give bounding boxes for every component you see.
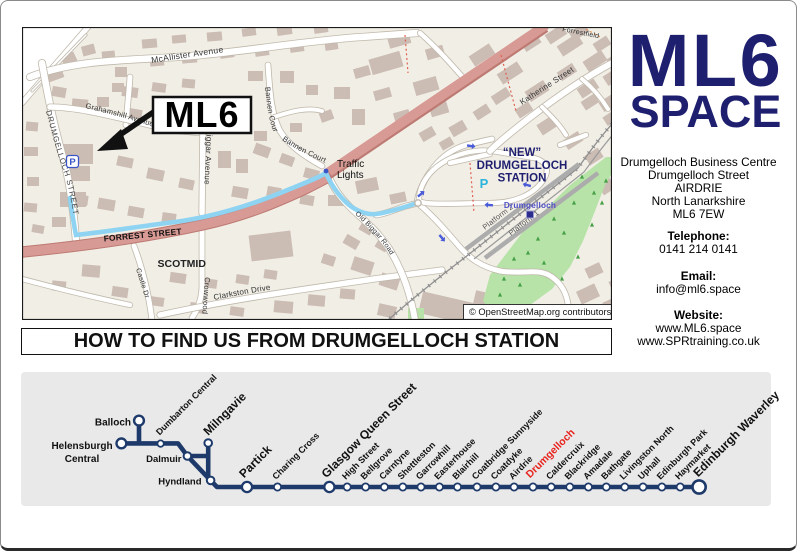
svg-text:Central: Central [65, 454, 100, 465]
svg-text:© OpenStreetMap.org contributo: © OpenStreetMap.org contributors [469, 307, 612, 317]
svg-text:SCOTMID: SCOTMID [158, 258, 207, 270]
svg-text:Balloch: Balloch [95, 417, 131, 428]
svg-text:Dalmuir: Dalmuir [146, 454, 182, 465]
svg-text:“NEW”: “NEW” [503, 147, 541, 159]
svg-text:DRUMGELLOCH: DRUMGELLOCH [477, 160, 568, 172]
svg-text:Traffic: Traffic [337, 159, 364, 170]
svg-text:Drumgelloch: Drumgelloch [504, 201, 556, 210]
svg-text:Hyndland: Hyndland [158, 476, 201, 487]
svg-text:Lights: Lights [337, 170, 364, 181]
svg-text:P: P [69, 157, 76, 168]
svg-text:ML6: ML6 [165, 94, 240, 135]
svg-text:STATION: STATION [498, 173, 547, 185]
svg-text:Helensburgh: Helensburgh [51, 441, 112, 452]
svg-text:P: P [480, 176, 489, 191]
